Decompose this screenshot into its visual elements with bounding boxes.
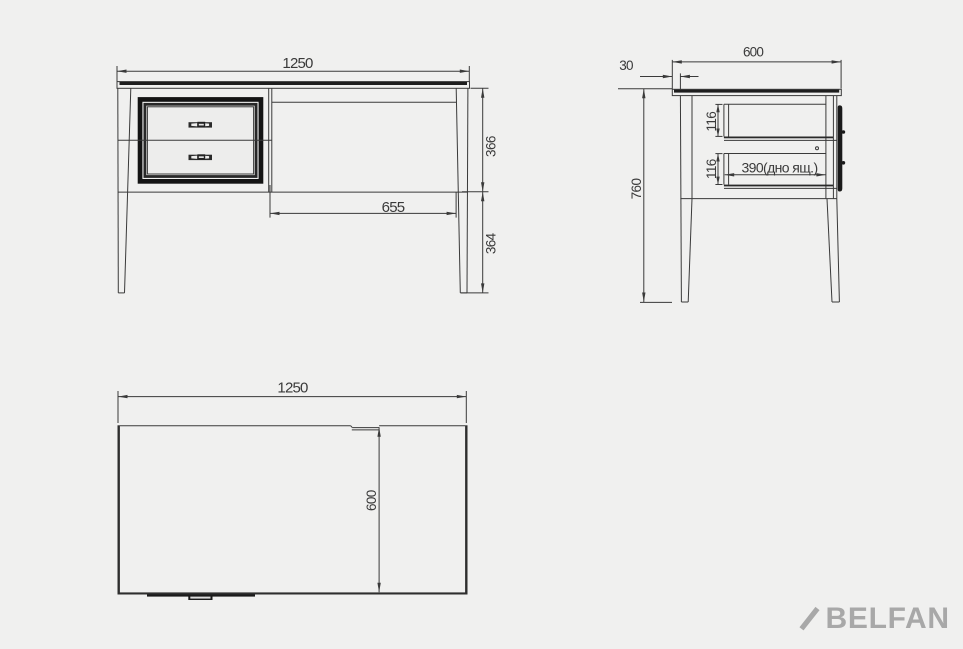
svg-text:600: 600 [743,44,763,59]
svg-text:390(дно ящ.): 390(дно ящ.) [741,160,817,176]
svg-text:600: 600 [364,490,379,511]
svg-text:655: 655 [382,199,405,216]
svg-text:BELFAN: BELFAN [826,602,950,635]
svg-text:116: 116 [704,112,719,132]
svg-text:1250: 1250 [282,55,313,72]
svg-text:364: 364 [484,232,499,254]
svg-text:760: 760 [629,179,644,200]
svg-text:30: 30 [619,58,633,73]
svg-text:1250: 1250 [277,380,308,397]
svg-text:366: 366 [484,136,499,157]
svg-text:116: 116 [704,159,719,179]
